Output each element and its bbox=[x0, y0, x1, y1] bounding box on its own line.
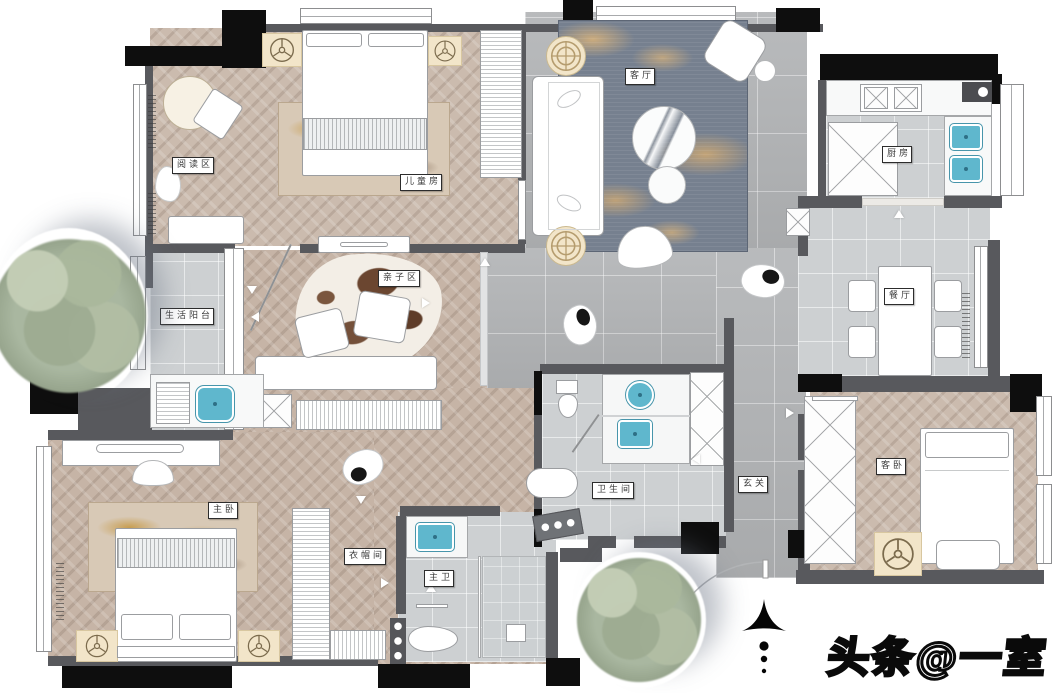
tv-console-tray bbox=[340, 242, 388, 247]
wall-segment bbox=[724, 318, 734, 532]
flow-arrow-down-icon bbox=[356, 496, 366, 504]
coffee-table-small bbox=[648, 166, 686, 204]
flow-arrow-up-icon bbox=[894, 210, 904, 218]
dining-chair bbox=[934, 280, 962, 312]
label-master-bath: 主卫 bbox=[424, 570, 454, 587]
window bbox=[300, 8, 432, 24]
floor-plan: 阅读区 儿童房 客厅 厨房 餐厅 客卧 卫生间 玄关 生活阳台 亲子区 主卧 衣… bbox=[0, 0, 1063, 693]
wall-segment bbox=[588, 536, 616, 548]
bedside-mat bbox=[428, 36, 462, 66]
niche-wall bbox=[390, 618, 406, 664]
kitchen-corner-dot bbox=[978, 87, 988, 97]
flow-arrow-down-icon bbox=[247, 286, 257, 294]
shoe-cabinet bbox=[296, 400, 442, 430]
bed-line bbox=[925, 470, 1009, 471]
pillow bbox=[368, 33, 424, 47]
bed-throw bbox=[936, 540, 1000, 570]
tree bbox=[0, 228, 148, 404]
burner bbox=[894, 87, 918, 109]
label-service-balcony: 生活阳台 bbox=[160, 308, 214, 325]
washing-machine bbox=[156, 382, 190, 424]
dining-chair bbox=[848, 280, 876, 312]
guest-wardrobe bbox=[804, 396, 856, 564]
wall-segment bbox=[400, 506, 500, 516]
label-living-room: 客厅 bbox=[625, 68, 655, 85]
bedside-mat bbox=[262, 33, 302, 67]
flow-arrow-right-icon bbox=[381, 578, 389, 588]
label-family-area: 亲子区 bbox=[378, 270, 420, 287]
cloak-wardrobe bbox=[292, 508, 330, 660]
wall-segment bbox=[944, 196, 1002, 208]
bath-sink-round bbox=[626, 381, 654, 409]
flow-arrow-up-icon bbox=[480, 258, 490, 266]
watermark: 头条@一室 bbox=[825, 624, 1051, 685]
wall-segment bbox=[840, 376, 1012, 392]
vanity-divider bbox=[602, 415, 690, 417]
label-kids-room: 儿童房 bbox=[400, 174, 442, 191]
towel-bar bbox=[416, 604, 448, 608]
pillow bbox=[179, 614, 231, 640]
dining-chair bbox=[848, 326, 876, 358]
radiator-coil bbox=[56, 560, 64, 620]
window bbox=[1036, 396, 1052, 476]
bench bbox=[168, 216, 244, 244]
round-plant-table-icon bbox=[546, 226, 586, 266]
wall-segment bbox=[150, 244, 235, 253]
side-ball-table bbox=[754, 60, 776, 82]
bed-blanket bbox=[303, 118, 427, 150]
coffee-table-large bbox=[632, 106, 696, 170]
label-kitchen: 厨房 bbox=[882, 146, 912, 163]
bedside-mat bbox=[238, 630, 280, 662]
sideboard bbox=[255, 356, 437, 390]
desk-tray bbox=[96, 444, 184, 453]
label-cloakroom: 衣帽间 bbox=[344, 548, 386, 565]
bath-sink-square bbox=[618, 420, 652, 448]
bedside-mat bbox=[76, 630, 118, 662]
label-guest-bedroom: 客卧 bbox=[876, 458, 906, 475]
label-entry: 玄关 bbox=[738, 476, 768, 493]
dining-table bbox=[878, 266, 932, 376]
pillow bbox=[306, 33, 362, 47]
window bbox=[1000, 84, 1024, 196]
wall-column bbox=[546, 658, 580, 686]
fan-symbol-icon bbox=[239, 631, 279, 661]
kids-wardrobe bbox=[480, 30, 522, 178]
fan-symbol-icon bbox=[77, 631, 117, 661]
radiator-coil bbox=[148, 92, 156, 148]
burner bbox=[864, 87, 888, 109]
headboard bbox=[117, 646, 235, 658]
label-bathroom: 卫生间 bbox=[592, 482, 634, 499]
label-dining-room: 餐厅 bbox=[884, 288, 914, 305]
kitchen-sink bbox=[950, 156, 982, 182]
fan-symbol-icon bbox=[263, 34, 301, 66]
label-master-bedroom: 主卧 bbox=[208, 502, 238, 519]
label-reading-area: 阅读区 bbox=[172, 157, 214, 174]
bedside-mat bbox=[874, 532, 922, 576]
wall-column bbox=[222, 10, 266, 68]
door-leaf bbox=[812, 396, 858, 401]
wall-column bbox=[798, 374, 842, 392]
wall-column bbox=[776, 8, 820, 32]
kitchen-sink bbox=[950, 124, 982, 150]
wall-segment bbox=[560, 548, 602, 562]
balcony-sink bbox=[196, 386, 234, 422]
floor-transition-strip bbox=[480, 252, 488, 386]
hall-cabinet bbox=[786, 208, 810, 236]
tree bbox=[572, 552, 706, 688]
bed-blanket bbox=[117, 538, 235, 568]
bath-tall-cabinet bbox=[690, 372, 724, 466]
flow-arrow-right-icon bbox=[786, 408, 794, 418]
wall-column bbox=[534, 371, 542, 415]
wall-segment bbox=[396, 516, 406, 614]
shower-glass bbox=[478, 556, 481, 658]
flow-arrow-left-icon bbox=[251, 312, 259, 322]
window bbox=[974, 246, 988, 368]
fan-symbol-icon bbox=[429, 37, 461, 65]
floor-cushion bbox=[352, 290, 411, 344]
fan-symbol-icon bbox=[875, 533, 921, 575]
pillow bbox=[925, 432, 1009, 458]
radiator-coil bbox=[148, 190, 156, 234]
master-bath-sink bbox=[416, 523, 454, 551]
wall-column bbox=[62, 666, 232, 688]
window bbox=[133, 84, 147, 236]
shower-area bbox=[482, 556, 546, 658]
kitchen-door-threshold bbox=[862, 198, 944, 206]
dining-chair bbox=[934, 326, 962, 358]
pillow bbox=[121, 614, 173, 640]
flow-arrow-left-icon bbox=[692, 454, 700, 464]
north-arrow-icon bbox=[738, 596, 790, 688]
wall-column bbox=[378, 664, 470, 688]
flow-arrow-right-icon bbox=[422, 298, 430, 308]
window bbox=[1036, 484, 1052, 564]
door-opening bbox=[518, 180, 526, 240]
bathtub bbox=[526, 468, 578, 498]
cloak-cabinet bbox=[330, 630, 386, 660]
toilet-tank bbox=[556, 380, 578, 394]
round-plant-table-icon bbox=[546, 36, 586, 76]
window bbox=[36, 446, 52, 652]
radiator-coil bbox=[962, 292, 970, 358]
wall-segment bbox=[818, 80, 826, 208]
wall-column bbox=[820, 54, 998, 80]
wall-segment bbox=[988, 240, 1000, 380]
shower-head bbox=[506, 624, 526, 642]
kids-bed bbox=[302, 30, 428, 176]
wall-segment bbox=[145, 248, 153, 288]
wall-segment bbox=[546, 552, 558, 662]
